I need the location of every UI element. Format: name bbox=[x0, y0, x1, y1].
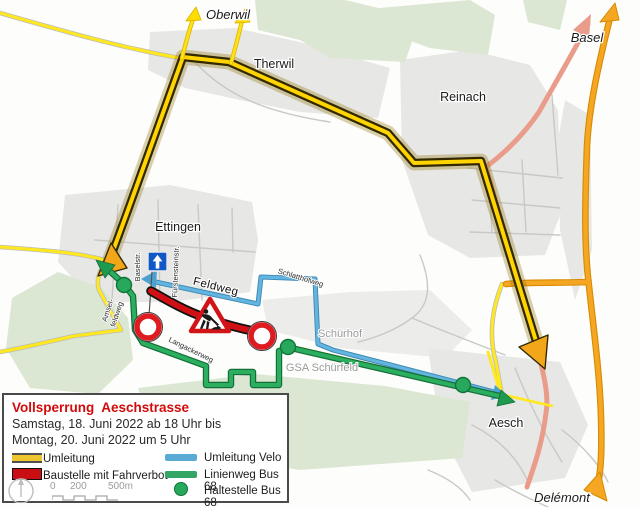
legend-label-umleitung: Umleitung bbox=[43, 453, 95, 465]
label-aesch: Aesch bbox=[489, 416, 524, 430]
legend-label-haltestelle: Haltestelle Bus 68 bbox=[204, 485, 287, 507]
scale-tick-200: 200 bbox=[70, 481, 108, 492]
label-schuerhof: Schürhof bbox=[318, 328, 363, 340]
forest-top-right bbox=[523, 0, 567, 30]
legend-date-end: Montag, 20. Juni 2022 um 5 Uhr bbox=[12, 433, 191, 447]
legend-swatch-bus bbox=[165, 471, 197, 478]
legend-title: Vollsperrung Aeschstrasse bbox=[12, 400, 189, 415]
road-ettingen-5 bbox=[232, 208, 233, 252]
label-reinach: Reinach bbox=[440, 90, 486, 104]
scale-tick-0: 0 bbox=[50, 481, 70, 492]
legend-swatch-haltestelle bbox=[174, 482, 188, 496]
no-entry-sign-east bbox=[248, 322, 277, 351]
bus-stop-aesch bbox=[456, 378, 471, 393]
scale-bar-labels: 0 200 500m bbox=[50, 481, 160, 492]
orange-route-casing bbox=[585, 14, 611, 489]
label-therwil: Therwil bbox=[254, 57, 294, 71]
no-entry-sign-west bbox=[134, 313, 163, 342]
map-screenshot: Oberwil Therwil Reinach Basel Ettingen A… bbox=[0, 0, 640, 507]
orange-arrowhead-basel bbox=[600, 3, 619, 22]
legend-swatch-velo bbox=[165, 454, 197, 461]
legend-swatch-umleitung bbox=[12, 453, 42, 463]
one-way-sign bbox=[148, 252, 167, 271]
bus-stop-gsa bbox=[281, 340, 296, 355]
legend-date-start: Samstag, 18. Juni 2022 ab 18 Uhr bis bbox=[12, 417, 221, 431]
legend-label-velo: Umleitung Velo bbox=[204, 452, 281, 464]
scale-tick-500: 500m bbox=[108, 481, 133, 492]
label-oberwil: Oberwil bbox=[206, 7, 251, 22]
label-delemont: Delémont bbox=[534, 490, 591, 505]
label-baselstr: Baselstr. bbox=[133, 253, 142, 282]
bus-stop-baselstr bbox=[117, 278, 132, 293]
label-ettingen: Ettingen bbox=[155, 220, 201, 234]
label-basel: Basel bbox=[571, 30, 605, 45]
oberwil-arrowhead-1 bbox=[186, 7, 201, 21]
label-fuerstensteinstr: Fürstensteinstr. bbox=[170, 246, 181, 298]
label-gsa-schuerfeld: GSA Schürfeld bbox=[286, 362, 358, 374]
legend-box: Vollsperrung Aeschstrasse Samstag, 18. J… bbox=[2, 393, 289, 503]
